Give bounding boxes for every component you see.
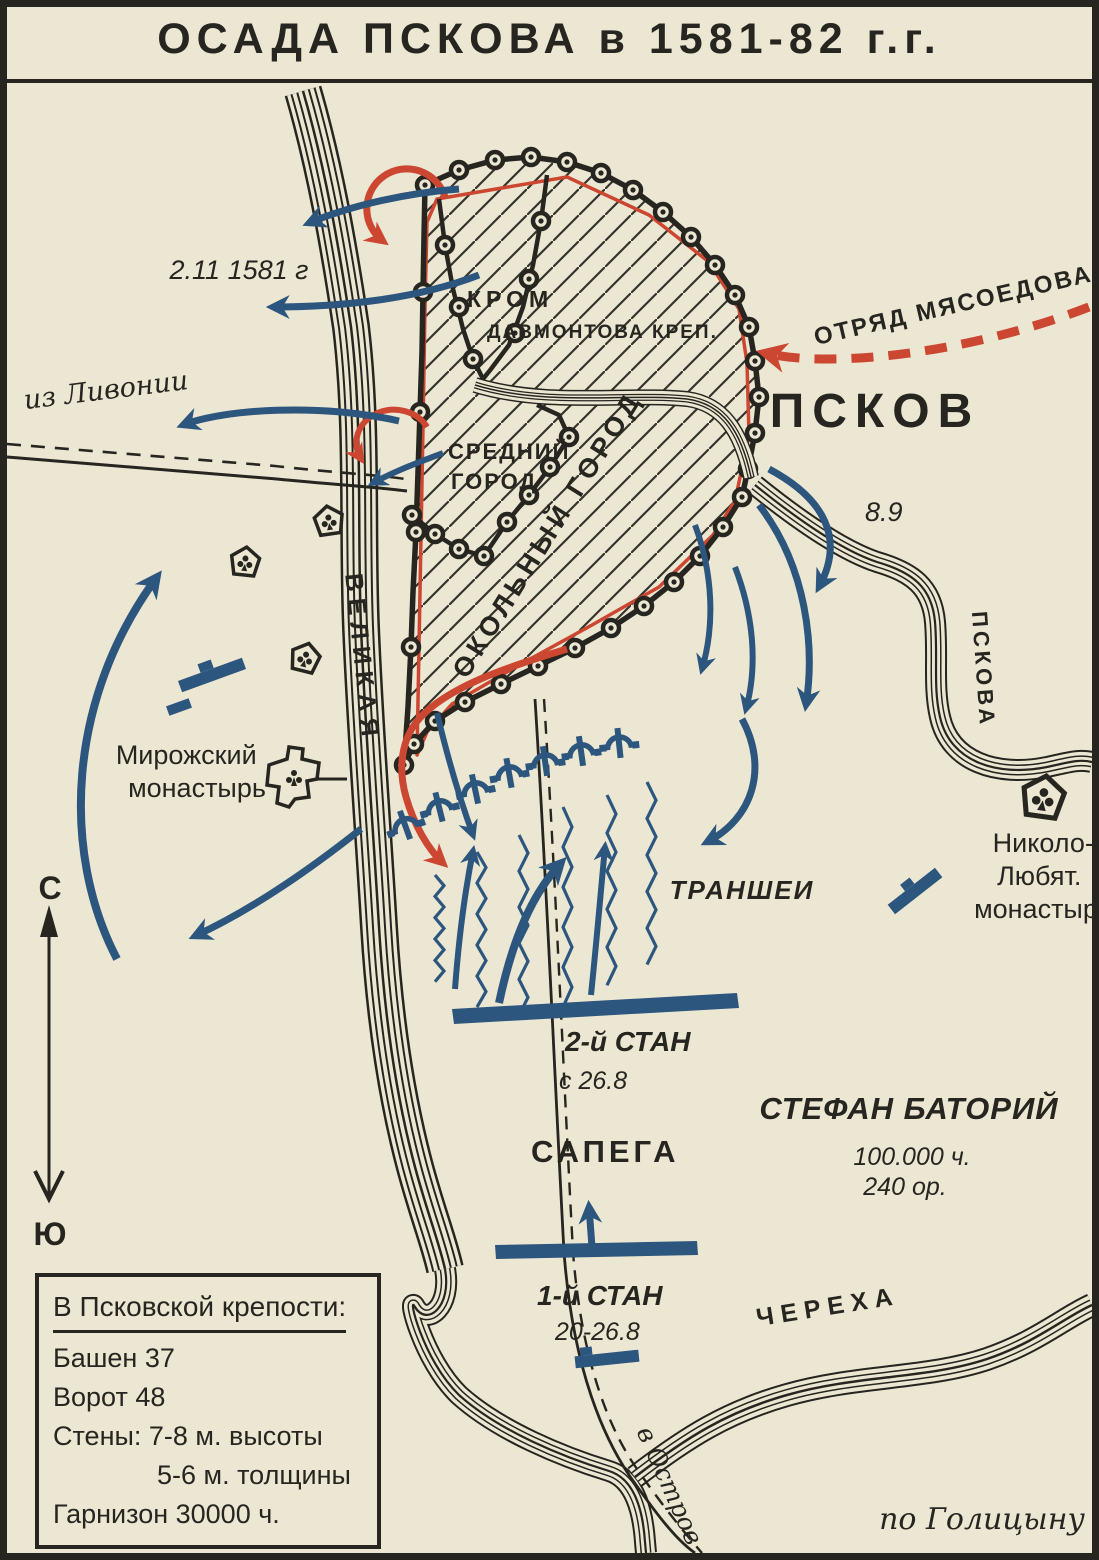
- road-to-ostrov: [535, 699, 702, 1553]
- camp2-label: 2-й СТАН: [564, 1026, 691, 1057]
- camp2-date-label: с 26.8: [559, 1067, 627, 1095]
- pskov-label: ПСКОВ: [770, 385, 980, 438]
- unit-mark-west-small: [166, 698, 192, 716]
- batory-guns-label: 240 ор.: [862, 1173, 946, 1201]
- siege-map: С Ю КРОМ ДАВМОНТОВА КРЕП. СРЕДНИЙ ГОРОД …: [0, 0, 1099, 1560]
- fortress-info-box: В Псковской крепости: Башен 37 Ворот 48 …: [35, 1273, 381, 1549]
- batory-men-label: 100.000 ч.: [853, 1143, 970, 1171]
- unit-mark-west: [175, 649, 246, 692]
- dovmont-label: ДАВМОНТОВА КРЕП.: [487, 322, 718, 343]
- info-box-line: Гарнизон 30000 ч.: [53, 1495, 363, 1534]
- title-divider: [7, 79, 1092, 83]
- info-box-line: Ворот 48: [53, 1378, 363, 1417]
- nikolo-label: Николо- Любят. монастырь: [974, 828, 1092, 924]
- sapega-label: САПЕГА: [531, 1134, 680, 1169]
- livonia-label: из Ливонии: [22, 365, 190, 416]
- river-velikaya-lower: [413, 1269, 646, 1553]
- trenches-label: ТРАНШЕИ: [670, 875, 815, 905]
- source-label: по Голицыну: [879, 1502, 1085, 1537]
- camp1-date-label: 20-26.8: [554, 1318, 640, 1346]
- myasoedov-label: ОТРЯД МЯСОЕДОВА: [811, 260, 1092, 350]
- info-box-line: Башен 37: [53, 1339, 363, 1378]
- info-box-line: Стены: 7-8 м. высоты: [53, 1417, 363, 1456]
- pskova-label: ПСКОВА: [967, 610, 1000, 728]
- camp1-label: 1-й СТАН: [537, 1280, 663, 1311]
- sortie-date-label: 2.11 1581 г: [169, 255, 309, 285]
- assault-date-label: 8.9: [865, 497, 903, 527]
- cherekha-label: ЧЕРЕХА: [754, 1282, 901, 1332]
- info-box-title: В Псковской крепости:: [53, 1287, 346, 1333]
- compass-south-label: Ю: [34, 1216, 67, 1252]
- krom-label: КРОМ: [467, 286, 553, 312]
- mirozhsky-label: Мирожский монастырь: [116, 740, 266, 803]
- batory-label: СТЕФАН БАТОРИЙ: [759, 1090, 1058, 1126]
- camp1-arrow: [589, 1207, 592, 1247]
- map-title: ОСАДА ПСКОВА в 1581-82 г.г.: [7, 15, 1092, 64]
- camp1-bar: [495, 1241, 698, 1259]
- compass-north-label: С: [38, 870, 61, 906]
- river-cherekha: [635, 1305, 1092, 1477]
- info-box-line: 5-6 м. толщины: [53, 1456, 363, 1495]
- mirozhsky-monastery-symbol: [267, 747, 347, 807]
- camp2-bar: [452, 993, 739, 1024]
- compass: С Ю: [34, 870, 67, 1252]
- unit-mark-east: [883, 861, 943, 914]
